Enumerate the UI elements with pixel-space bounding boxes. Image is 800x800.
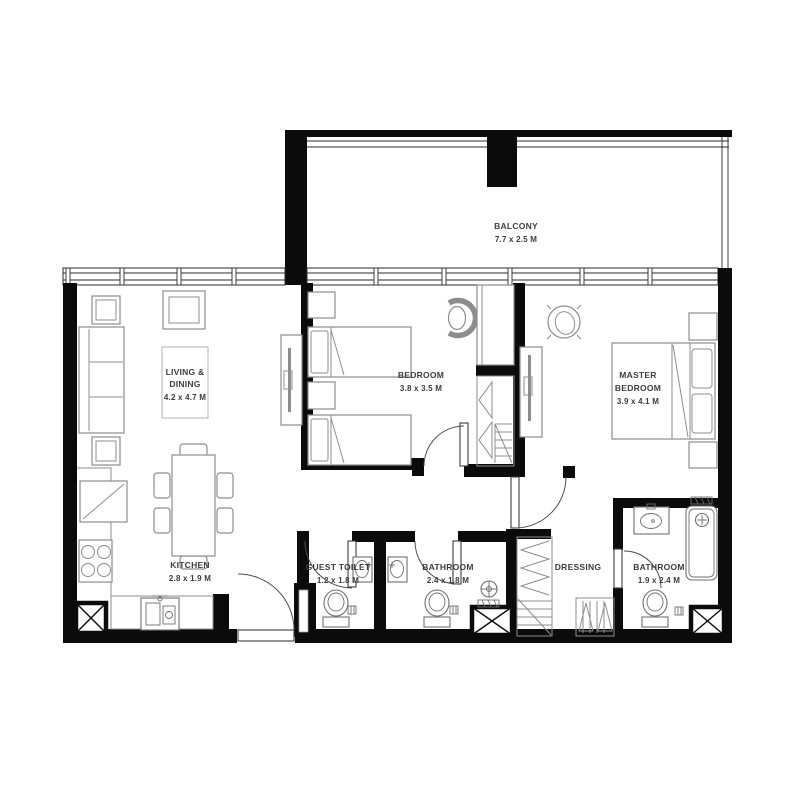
- washbasin-bathroom: [388, 557, 407, 582]
- vanity-sink-master: [634, 504, 669, 534]
- master-bedroom-label-line2: BEDROOM: [615, 383, 661, 393]
- dressing-label: DRESSING: [555, 562, 602, 572]
- tv-unit-living: [281, 335, 302, 425]
- master-bathroom-dims: 1.9 x 2.4 M: [638, 576, 680, 585]
- sofa: [79, 327, 124, 433]
- dining-chair: [217, 473, 233, 498]
- balcony-structure: [285, 130, 732, 285]
- nightstand-master: [689, 442, 717, 468]
- wall-jamb-master-door: [563, 466, 575, 478]
- dining-set: [154, 444, 233, 569]
- dining-chair: [154, 473, 170, 498]
- living-room: [79, 291, 302, 569]
- floor-plan-page: BALCONY 7.7 x 2.5 M LIVING & DINING 4.2 …: [0, 0, 800, 800]
- tv-unit-master: [520, 347, 542, 437]
- balcony-window-band: [307, 268, 718, 285]
- dining-chair: [154, 508, 170, 533]
- toilet-bathroom: [424, 590, 450, 627]
- column-bottom-right: [691, 607, 724, 635]
- column-bottom-middle: [472, 607, 512, 635]
- toilet-guest: [323, 590, 349, 627]
- master-bathroom-label: BATHROOM: [633, 562, 684, 572]
- dining-table: [172, 455, 215, 556]
- window-bands: [63, 268, 718, 285]
- outer-wall-left: [63, 283, 77, 643]
- wall-jamb-bedroom-door: [412, 458, 424, 476]
- balcony-dims: 7.7 x 2.5 M: [495, 235, 537, 244]
- master-bedroom-dims: 3.9 x 4.1 M: [617, 397, 659, 406]
- outer-wall-right: [718, 268, 732, 643]
- armchair-bedroom: [449, 301, 476, 336]
- floor-drain: [675, 607, 683, 615]
- floor-drain: [450, 606, 458, 614]
- toilet-master: [642, 590, 668, 627]
- wall-closet-stub: [476, 365, 525, 376]
- wardrobe-bedroom: [477, 285, 514, 365]
- kitchen-dims: 2.8 x 1.9 M: [169, 574, 211, 583]
- balcony-center-column: [487, 130, 517, 187]
- master-bedroom-label-line1: MASTER: [619, 370, 656, 380]
- closet-bedroom: [477, 376, 514, 466]
- nightstand-master: [689, 313, 717, 340]
- entrance-door: [238, 574, 294, 641]
- bathtub: [686, 497, 717, 580]
- column-bottom-left: [76, 603, 106, 633]
- living-label-line2: DINING: [169, 379, 200, 389]
- guest-toilet-dims: 1.2 x 1.8 M: [317, 576, 359, 585]
- bedroom-dims: 3.8 x 3.5 M: [400, 384, 442, 393]
- bathroom-dims: 2.4 x 1.8 M: [427, 576, 469, 585]
- kitchen-label: KITCHEN: [170, 560, 210, 570]
- wall-kitchen-entry-stub: [213, 594, 229, 631]
- balcony-left-column: [285, 130, 307, 285]
- kitchen-corner-unit: [80, 481, 127, 522]
- dining-chair: [217, 508, 233, 533]
- twin-bed-1: [308, 327, 411, 377]
- stove: [79, 540, 112, 582]
- floor-drain: [348, 606, 356, 614]
- bedroom-label: BEDROOM: [398, 370, 444, 380]
- shower-head: [478, 581, 499, 607]
- nightstand: [308, 382, 335, 409]
- balcony-label: BALCONY: [494, 221, 538, 231]
- kitchen-sink: [141, 596, 179, 630]
- dressing-wardrobe-left: [517, 537, 552, 636]
- wall-dressing-bath-upper: [613, 508, 623, 550]
- guest-toilet-label: GUEST TOILET: [306, 562, 371, 572]
- wall-guest-bathroom: [374, 531, 386, 637]
- twin-bed-2: [308, 415, 411, 465]
- bathroom-label: BATHROOM: [422, 562, 473, 572]
- dressing-area: [517, 537, 614, 636]
- living-window-band: [63, 268, 285, 285]
- bedroom-door: [424, 423, 468, 466]
- entry-pantry-unit: [299, 590, 308, 632]
- armchair-master: [547, 305, 581, 339]
- master-suite-door: [511, 477, 566, 528]
- living-label-line1: LIVING &: [166, 367, 205, 377]
- floor-plan: BALCONY 7.7 x 2.5 M LIVING & DINING 4.2 …: [0, 0, 800, 800]
- nightstand: [308, 292, 335, 318]
- living-dims: 4.2 x 4.7 M: [164, 393, 206, 402]
